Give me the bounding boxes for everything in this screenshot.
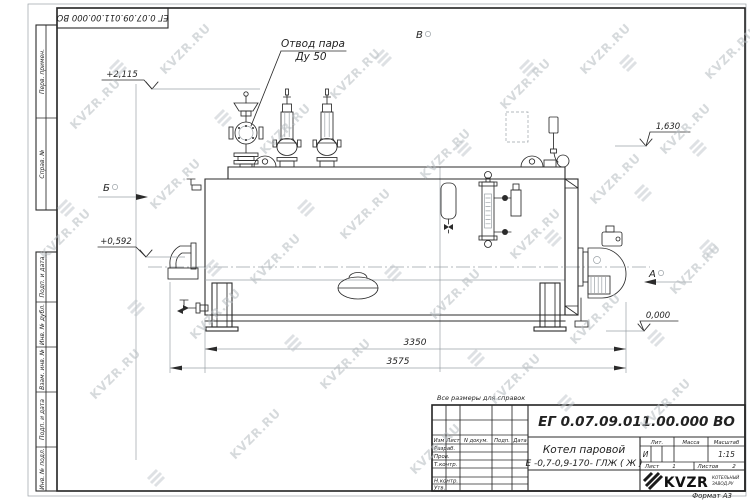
dimension-body-length: 3350 (205, 302, 626, 373)
title-block: Все размеры для справок ЕГ 0.07.09.011.0… (432, 394, 745, 500)
boiler-drawing-svg: ЕГ 0.07.09.011.00.000 ВО Перв. примен. С… (0, 0, 750, 500)
svg-text:KVZR.RU: KVZR.RU (667, 241, 724, 298)
safety-valve-2 (313, 89, 341, 167)
boiler-side-view: Отвод пара Ду 50 В Б А +2,115 (98, 30, 692, 460)
svg-text:1,630: 1,630 (656, 122, 680, 132)
svg-text:KVZR.RU: KVZR.RU (157, 21, 214, 78)
col-data: Дата (512, 438, 526, 444)
svg-text:KVZR.RU: KVZR.RU (702, 26, 750, 83)
elevation-drum-top: 1,630 (615, 122, 690, 146)
frame-label-vzam-inv: Взам. инв. № (39, 349, 46, 390)
col-doc: N докум. (464, 438, 488, 444)
svg-text:3575: 3575 (387, 357, 410, 367)
lit-header: Лит. (650, 440, 663, 446)
svg-text:0,000: 0,000 (646, 311, 670, 321)
sheets-label: Листов (697, 464, 719, 470)
row-utv: Утв. (434, 486, 445, 492)
scale-header: Масштаб (714, 440, 740, 446)
svg-text:KVZR.RU: KVZR.RU (87, 346, 144, 403)
view-b-label: В (416, 30, 423, 41)
frame-label-inv-dubl: Инв. № дубл. (39, 304, 46, 345)
svg-text:KVZR.RU: KVZR.RU (147, 156, 204, 213)
svg-text:KVZR.RU: KVZR.RU (507, 206, 564, 263)
svg-text:+0,592: +0,592 (100, 237, 131, 247)
frame-label-podp-data-2: Подп. и дата (39, 399, 46, 440)
col-list: Лист (445, 438, 460, 444)
frame-label-inv-podl: Инв. № подл. (39, 448, 46, 489)
row-prov: Пров. (434, 454, 450, 460)
product-name-line1: Котел паровой (543, 444, 626, 456)
svg-text:KVZR.RU: KVZR.RU (337, 186, 394, 243)
steam-outlet-valve (229, 92, 263, 167)
svg-text:KVZR.RU: KVZR.RU (567, 291, 624, 348)
title-doc-number: ЕГ 0.07.09.011.00.000 ВО (538, 414, 735, 430)
scale-value: 1:15 (718, 450, 735, 459)
svg-text:KVZR.RU: KVZR.RU (227, 406, 284, 463)
svg-text:KVZR.RU: KVZR.RU (497, 56, 554, 113)
svg-text:KVZR.RU: KVZR.RU (577, 21, 634, 78)
lifting-lug-left (254, 156, 276, 167)
burner-assembly (565, 179, 626, 327)
col-izm: Изм (434, 438, 445, 444)
front-elbow-pipe (168, 179, 208, 314)
support-legs (206, 283, 566, 331)
row-nkontr: Н.контр. (434, 479, 458, 485)
lit-value: И (643, 450, 649, 459)
view-right-label: А (648, 269, 656, 280)
top-stamp-doc-number: ЕГ 0.07.09.011.00.000 ВО (56, 12, 168, 22)
callout-line2: Ду 50 (294, 51, 326, 63)
elevation-ground: 0,000 (606, 311, 678, 331)
callout-line1: Отвод пара (281, 38, 345, 50)
product-name-line2: Е -0,7-0,9-170- ГЛЖ ( Ж ) (526, 459, 643, 469)
frame-label-perv-primen: Перв. примен. (39, 49, 46, 94)
svg-text:KVZR.RU: KVZR.RU (257, 101, 314, 158)
svg-text:KVZR.RU: KVZR.RU (417, 126, 474, 183)
kvzr-logo-text: KVZR (664, 475, 709, 491)
view-left-label: Б (103, 183, 110, 194)
frame-label-sprav-no: Справ. № (39, 149, 46, 178)
sheet-label: Лист (644, 464, 660, 470)
elevation-valve-top: +2,115 (102, 70, 260, 89)
svg-text:KVZR.RU: KVZR.RU (187, 286, 244, 343)
kvzr-logo-sub2: ЗАВОД.РУ (712, 481, 734, 486)
format-note: Формат А3 (692, 492, 732, 500)
svg-text:KVZR.RU: KVZR.RU (317, 336, 374, 393)
svg-text:KVZR.RU: KVZR.RU (67, 76, 124, 133)
drawing-sheet: ЕГ 0.07.09.011.00.000 ВО Перв. примен. С… (0, 0, 750, 500)
svg-text:KVZR.RU: KVZR.RU (247, 231, 304, 288)
left-frame-column: Перв. примен. Справ. № Подп. и дата Инв.… (36, 25, 57, 491)
lifting-lug-right (521, 156, 543, 167)
svg-text:KVZR.RU: KVZR.RU (327, 46, 384, 103)
row-tkontr: Т.контр. (434, 462, 457, 468)
svg-text:KVZR.RU: KVZR.RU (587, 151, 644, 208)
manhole (338, 273, 378, 300)
safety-valve-1 (273, 89, 301, 167)
water-gauge-assembly (441, 172, 521, 248)
svg-text:KVZR.RU: KVZR.RU (427, 266, 484, 323)
kvzr-logo: KVZR КОТЕЛЬНЫЙ ЗАВОД.РУ (644, 473, 740, 491)
level-sensor (506, 112, 569, 167)
row-razrab: Разраб. (434, 446, 455, 452)
col-podp: Подп. (494, 438, 510, 444)
mass-header: Масса (682, 440, 699, 446)
sheets-value: 2 (732, 464, 736, 470)
svg-text:+2,115: +2,115 (106, 70, 137, 80)
frame-label-podp-data-1: Подп. и дата (39, 256, 46, 297)
steam-outlet-callout: Отвод пара Ду 50 (251, 38, 346, 126)
reference-note: Все размеры для справок (437, 394, 525, 402)
sheet-value: 1 (672, 464, 676, 470)
kvzr-logo-sub1: КОТЕЛЬНЫЙ (712, 475, 740, 480)
view-arrow-b-top: В (416, 30, 431, 41)
svg-text:3350: 3350 (404, 338, 427, 348)
view-arrow-a-right: А (644, 269, 692, 285)
view-arrow-b-left: Б (98, 183, 148, 200)
